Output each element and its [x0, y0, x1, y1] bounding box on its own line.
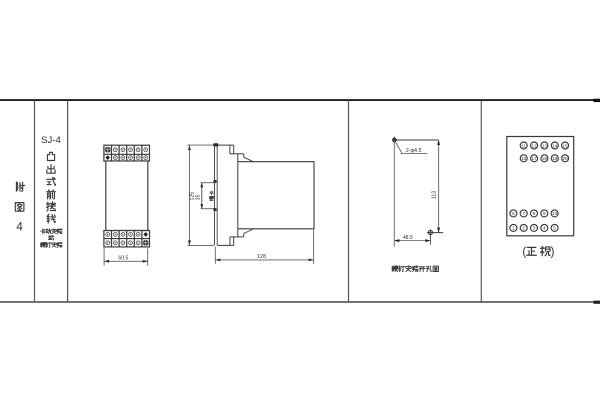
svg-text:6: 6 [512, 211, 515, 216]
svg-text:17: 17 [531, 156, 537, 161]
svg-text:18: 18 [542, 156, 548, 161]
svg-text:7: 7 [522, 211, 525, 216]
svg-text:128: 128 [257, 254, 266, 260]
svg-text:20: 20 [562, 156, 568, 161]
svg-text:(: ( [522, 246, 526, 258]
svg-text:113: 113 [431, 191, 437, 199]
svg-text:13: 13 [542, 143, 548, 148]
svg-text:4: 4 [16, 222, 23, 234]
svg-text:11: 11 [521, 143, 526, 148]
svg-text:35: 35 [196, 194, 202, 200]
svg-text:5: 5 [553, 226, 556, 231]
svg-text:16: 16 [521, 156, 527, 161]
svg-text:125: 125 [189, 192, 195, 201]
svg-text:48.5: 48.5 [403, 235, 413, 241]
svg-text:19: 19 [552, 156, 558, 161]
svg-text:15: 15 [562, 143, 568, 148]
svg-text:4: 4 [543, 226, 546, 231]
svg-text:60.5: 60.5 [118, 255, 128, 261]
svg-text:3: 3 [533, 226, 536, 231]
svg-text:14: 14 [552, 143, 558, 148]
svg-text:2: 2 [522, 226, 525, 231]
svg-text:9: 9 [543, 211, 546, 216]
svg-text:): ) [551, 246, 555, 258]
svg-text:1: 1 [512, 226, 515, 231]
svg-text:10: 10 [552, 211, 558, 216]
svg-text:12: 12 [531, 143, 537, 148]
svg-text:SJ-4: SJ-4 [41, 135, 61, 146]
svg-text:8: 8 [533, 211, 536, 216]
svg-text:2-φ4.5: 2-φ4.5 [406, 148, 422, 154]
